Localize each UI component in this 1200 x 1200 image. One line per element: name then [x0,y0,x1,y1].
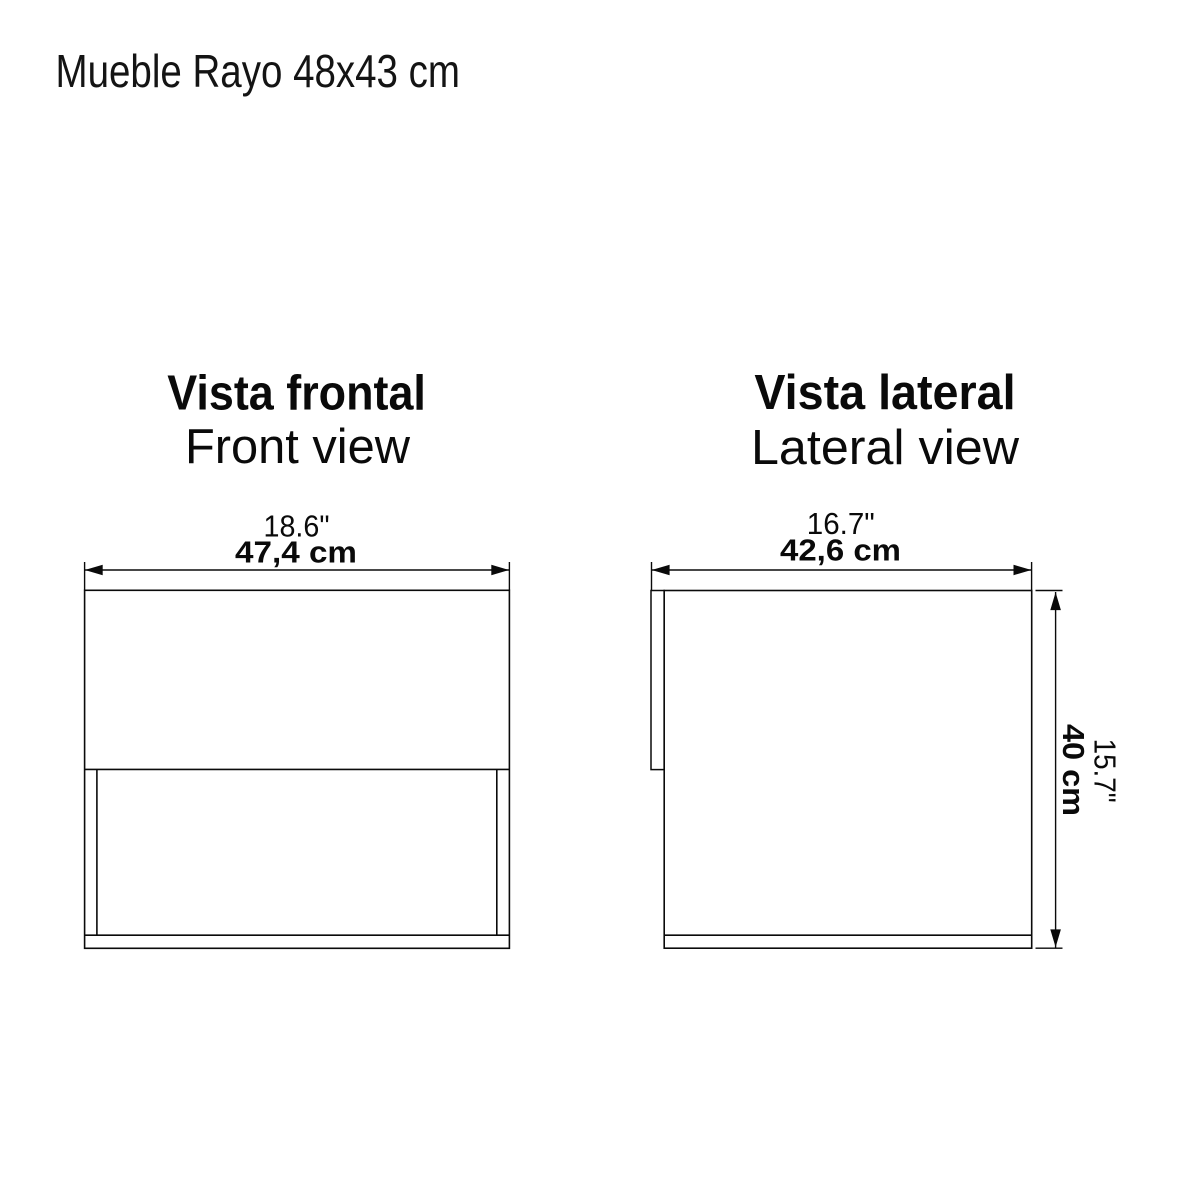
svg-text:Vista lateral: Vista lateral [754,366,1015,420]
svg-text:Front view: Front view [185,420,411,474]
svg-text:47,4 cm: 47,4 cm [235,534,357,569]
svg-text:42,6 cm: 42,6 cm [780,533,901,568]
svg-text:Vista frontal: Vista frontal [167,366,426,420]
svg-text:Lateral view: Lateral view [751,421,1020,475]
svg-text:40 cm: 40 cm [1056,724,1091,816]
svg-text:Mueble Rayo 48x43 cm: Mueble Rayo 48x43 cm [56,45,461,97]
svg-text:15.7": 15.7" [1087,739,1122,803]
